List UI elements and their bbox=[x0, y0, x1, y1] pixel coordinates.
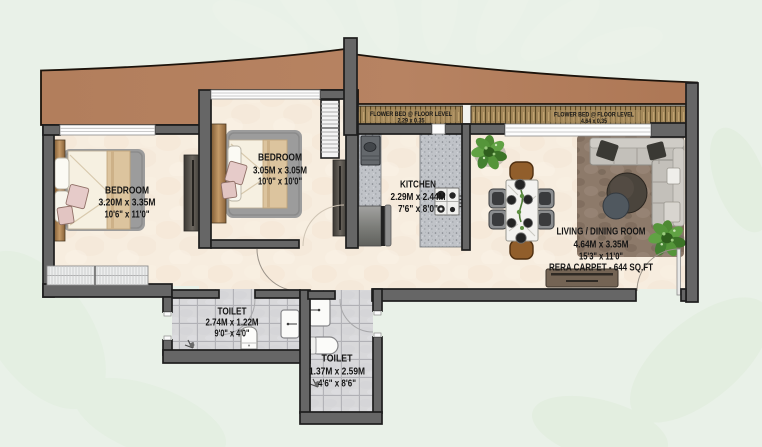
svg-text:2.74M x 1.22M: 2.74M x 1.22M bbox=[206, 318, 259, 329]
svg-text:TOILET: TOILET bbox=[218, 307, 247, 318]
svg-text:BEDROOM: BEDROOM bbox=[258, 153, 302, 164]
svg-text:3.05M x 3.05M: 3.05M x 3.05M bbox=[253, 166, 307, 177]
svg-text:KITCHEN: KITCHEN bbox=[400, 180, 436, 191]
svg-text:3.20M x 3.35M: 3.20M x 3.35M bbox=[99, 198, 156, 209]
svg-text:FLOWER BED @ FLOOR LEVEL: FLOWER BED @ FLOOR LEVEL bbox=[370, 112, 452, 118]
svg-text:1.37M x 2.59M: 1.37M x 2.59M bbox=[309, 367, 365, 378]
svg-text:LIVING / DINING ROOM: LIVING / DINING ROOM bbox=[557, 227, 646, 238]
svg-text:BEDROOM: BEDROOM bbox=[105, 186, 149, 197]
svg-text:15'3" x 11'0": 15'3" x 11'0" bbox=[579, 252, 623, 263]
svg-text:4'6" x 8'6": 4'6" x 8'6" bbox=[318, 379, 356, 390]
svg-text:TOILET: TOILET bbox=[322, 354, 353, 365]
svg-text:2.29M x 2.44M: 2.29M x 2.44M bbox=[391, 192, 446, 203]
svg-text:10'6" x 11'0": 10'6" x 11'0" bbox=[105, 210, 150, 221]
svg-text:RERA CARPET - 644 SQ.FT: RERA CARPET - 644 SQ.FT bbox=[549, 263, 653, 274]
svg-text:7'6" x 8'0": 7'6" x 8'0" bbox=[398, 204, 438, 215]
svg-text:4.64M x 3.35M: 4.64M x 3.35M bbox=[574, 240, 629, 251]
svg-text:9'0" x 4'0": 9'0" x 4'0" bbox=[215, 329, 250, 340]
svg-text:10'0" x 10'0": 10'0" x 10'0" bbox=[258, 177, 302, 188]
svg-text:FLOWER BED @ FLOOR LEVEL: FLOWER BED @ FLOOR LEVEL bbox=[554, 113, 634, 119]
